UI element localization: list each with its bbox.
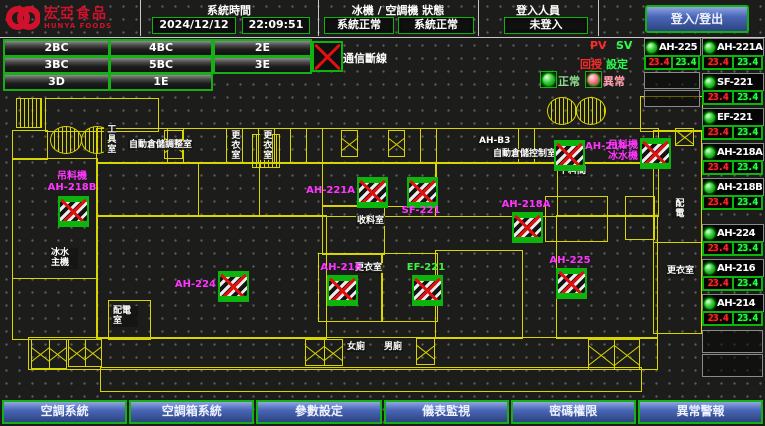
wall [198,162,260,217]
plan-device-icon[interactable] [58,196,89,227]
device-entry-ah-224[interactable]: AH-224 [702,224,764,242]
room-label: 更衣室 [260,130,272,160]
device-entry-ef-221[interactable]: EF-221 [702,108,764,126]
device-status-led [704,147,715,158]
room-label: 配電 [672,198,684,218]
wall-divider [226,128,227,162]
device-slot-empty [702,354,763,377]
wall-divider [242,128,243,162]
plan-device-label: AH-225 [542,256,598,267]
floor-button-2bc[interactable]: 2BC [3,39,110,57]
wall-divider [436,128,437,162]
stairs-icon [50,126,82,154]
shaft-icon [305,339,343,366]
room-label: 更衣室 [666,266,695,276]
plan-device-icon[interactable] [412,275,443,306]
floor-button-2e[interactable]: 2E [213,39,312,57]
plan-device-icon[interactable] [357,177,388,208]
device-values: 23.423.4 [702,125,763,140]
wall-divider [290,128,291,162]
device-entry-ah-221a[interactable]: AH-221A [702,38,764,56]
plan-device-label: EF-221 [398,263,454,274]
device-sv-value: 23.4 [672,56,699,69]
room-label: 男廁 [383,342,403,352]
device-pv-value: 23.4 [703,277,733,290]
floor-button-5bc[interactable]: 5BC [109,56,213,74]
device-status-led [704,42,715,53]
device-status-led [704,228,715,239]
shaft-icon [416,338,435,365]
floor-button-3e[interactable]: 3E [213,56,312,74]
device-entry-sf-221[interactable]: SF-221 [702,73,764,91]
device-pv-value: 23.4 [703,242,733,255]
device-pv-value: 23.4 [645,56,672,69]
room-label: 自動倉儲控制室 [492,149,557,159]
floor-button-3bc[interactable]: 3BC [3,56,110,74]
device-name: AH-216 [717,263,755,274]
hmi-screen: 宏亞食品 HUNYA FOODS 系統時間 2024/12/12 22:09:5… [0,0,765,426]
wall-divider [306,128,307,162]
device-status-led [646,42,657,53]
wall [12,278,98,340]
device-name: AH-224 [717,228,755,239]
device-entry-ah-218b[interactable]: AH-218B [702,178,764,196]
menu-button-儀表監視[interactable]: 儀表監視 [384,400,509,424]
plan-device-icon[interactable] [327,275,358,306]
wall [100,367,642,392]
device-pv-value: 23.4 [703,56,733,69]
plan-device-label: AH-218A [498,200,554,211]
plan-device-icon[interactable] [407,177,438,208]
plan-device-icon[interactable] [512,212,543,243]
plan-device-icon[interactable] [218,271,249,302]
room-label: 配電室 [112,306,138,327]
device-sv-value: 23.4 [733,277,763,290]
device-sv-value: 23.4 [733,312,763,325]
device-sv-value: 23.4 [733,242,763,255]
comm-loss-legend-icon [312,41,343,72]
shaft-icon [68,339,102,367]
device-pv-value: 23.4 [703,91,733,104]
device-name: AH-218B [717,182,762,193]
device-values: 23.423.4 [702,311,763,326]
device-entry-ah-216[interactable]: AH-216 [702,259,764,277]
device-values: 23.423.4 [702,160,763,175]
device-values: 23.423.4 [702,241,763,256]
device-values: 23.423.4 [702,90,763,105]
floor-button-3d[interactable]: 3D [3,73,110,91]
plan-device-label: AH-216 [313,263,369,274]
menu-button-空調箱系統[interactable]: 空調箱系統 [129,400,254,424]
wall-divider [420,128,421,162]
menu-button-異常警報[interactable]: 異常警報 [638,400,763,424]
device-entry-ah-214[interactable]: AH-214 [702,294,764,312]
floor-button-4bc[interactable]: 4BC [109,39,213,57]
device-pv-value: 23.4 [703,196,733,209]
device-name: AH-221A [717,42,762,53]
room-label: 收料室 [356,216,385,226]
wall-divider [322,128,323,162]
plan-device-label: 吊料機AH-218B [44,172,100,193]
plan-device-icon[interactable] [640,138,671,169]
plan-device-label: AH-224 [158,280,216,291]
device-pv-value: 23.4 [703,312,733,325]
device-sv-value: 23.4 [733,161,763,174]
device-status-led [704,263,715,274]
plan-device-icon[interactable] [556,268,587,299]
room-label: 女廁 [346,342,366,352]
shaft-icon [588,339,640,370]
device-name: AH-225 [659,42,697,53]
device-status-led [704,298,715,309]
device-sv-value: 23.4 [733,196,763,209]
device-slot-empty [644,72,700,89]
device-sv-value: 23.4 [733,56,763,69]
device-entry-ah-225[interactable]: AH-225 [644,38,701,56]
plan-device-label: AH-221A [297,186,355,197]
menu-button-密碼權限[interactable]: 密碼權限 [511,400,636,424]
device-pv-value: 23.4 [703,126,733,139]
device-name: EF-221 [717,112,752,123]
device-values: 23.423.4 [702,55,763,70]
stairs-icon [16,98,42,128]
room-label: 自動倉儲調整室 [128,140,193,150]
device-name: SF-221 [717,77,753,88]
wall [12,130,48,160]
device-slot-empty [702,330,763,353]
device-name: AH-218A [717,147,762,158]
room-label: 更衣室 [228,130,240,160]
device-status-led [704,112,715,123]
plan-device-label: SF-221 [393,206,449,217]
menu-button-參數設定[interactable]: 參數設定 [256,400,381,424]
device-name: AH-214 [717,298,755,309]
wall [28,337,658,370]
device-values: 23.423.4 [644,55,700,70]
room-label: 工具室 [104,124,116,154]
stairs-icon [547,97,577,125]
shaft-icon [388,130,405,157]
room-label: AH-B3 [478,136,511,146]
device-entry-ah-218a[interactable]: AH-218A [702,143,764,161]
device-sv-value: 23.4 [733,126,763,139]
wall [653,242,702,334]
shaft-icon [675,128,694,146]
device-pv-value: 23.4 [703,161,733,174]
footer-menu: 空調系統空調箱系統參數設定儀表監視密碼權限異常警報 [0,399,765,425]
menu-button-空調系統[interactable]: 空調系統 [2,400,127,424]
room-label: 冰水主機 [50,248,78,269]
stairs-icon [576,97,606,125]
wall [625,196,655,240]
plan-device-label: 吊料機冰水機 [580,141,638,162]
device-values: 23.423.4 [702,195,763,210]
device-values: 23.423.4 [702,276,763,291]
wall [322,205,385,255]
shaft-icon [31,339,67,369]
shaft-icon [341,130,358,157]
floor-button-1e[interactable]: 1E [109,73,213,91]
device-status-led [704,77,715,88]
device-sv-value: 23.4 [733,91,763,104]
device-status-led [704,182,715,193]
device-slot-empty [644,90,700,107]
